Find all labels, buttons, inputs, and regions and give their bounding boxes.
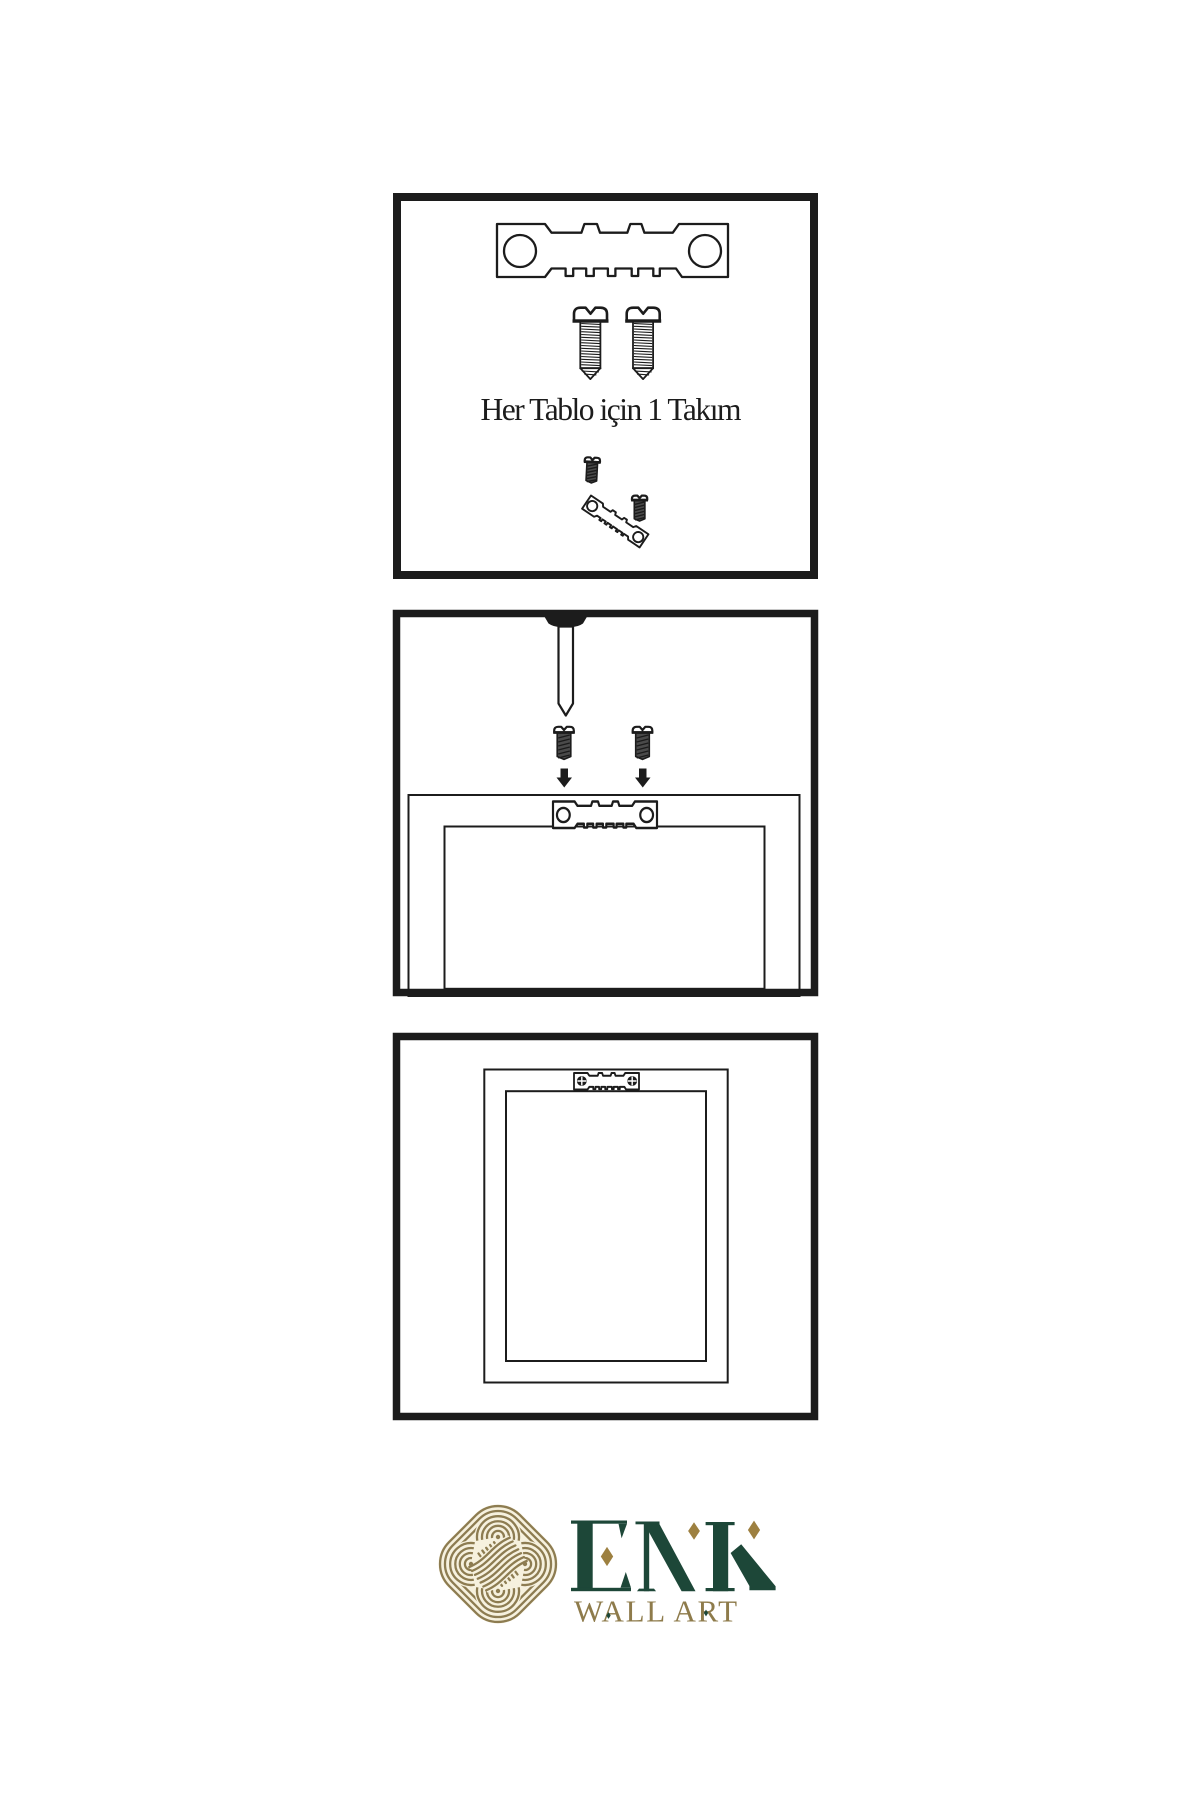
svg-text:Her Tablo için 1 Takım: Her Tablo için 1 Takım [481, 392, 742, 427]
svg-text:WALL ART: WALL ART [574, 1594, 737, 1629]
